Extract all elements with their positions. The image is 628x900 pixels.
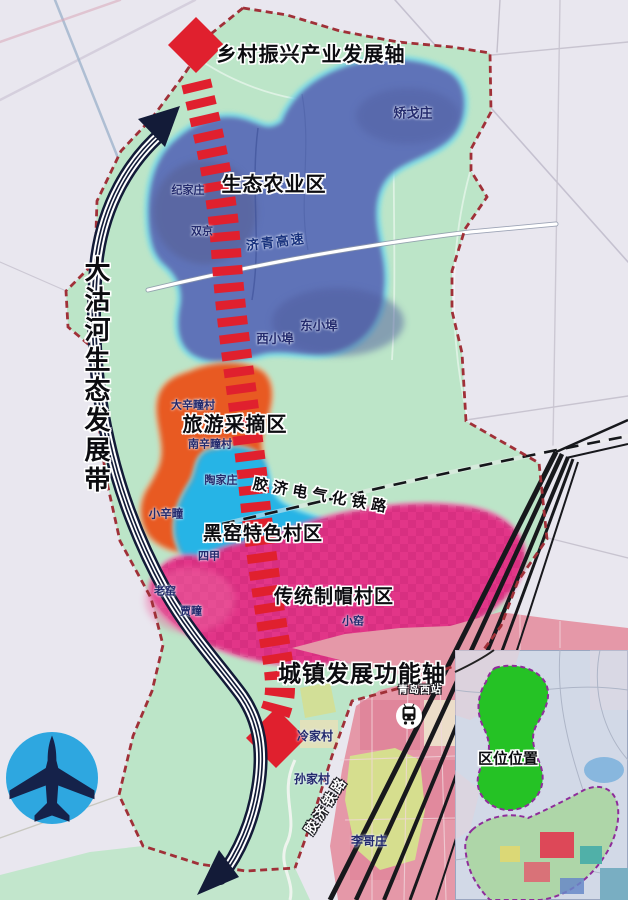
train-station-icon xyxy=(396,703,422,729)
village-label: 南辛疃村 xyxy=(188,439,232,450)
village-label: 孙家村 xyxy=(294,773,330,785)
village-label: 冷家村 xyxy=(297,730,333,742)
village-label: 陶家庄 xyxy=(205,475,238,486)
planning-map: 乡村振兴产业发展轴 生态农业区 旅游采摘区 黑窑特色村区 传统制帽村区 城镇发展… xyxy=(0,0,628,900)
village-label: 矫戈庄 xyxy=(393,108,432,121)
village-label: 西小埠 xyxy=(256,333,294,346)
airplane-icon xyxy=(6,732,98,824)
village-label: 东小埠 xyxy=(300,320,338,333)
label-urban-axis: 城镇发展功能轴 xyxy=(278,664,446,687)
village-label: 李哥庄 xyxy=(351,835,387,847)
village-label: 四甲 xyxy=(198,551,220,562)
label-zone-agriculture: 生态农业区 xyxy=(222,174,327,194)
village-label: 老窑 xyxy=(154,586,176,597)
label-station: 青岛西站 xyxy=(398,686,442,696)
village-label: 小辛疃 xyxy=(149,508,184,520)
village-label: 纪家庄 xyxy=(172,185,205,196)
village-label: 贾疃 xyxy=(180,606,202,617)
label-rural-axis: 乡村振兴产业发展轴 xyxy=(217,44,406,64)
label-zone-tourism: 旅游采摘区 xyxy=(183,414,288,434)
label-inset-title: 区位位置 xyxy=(478,752,538,767)
location-inset xyxy=(455,650,628,900)
label-river-belt: 大沽河生态发展带 xyxy=(82,256,108,496)
village-label: 大辛疃村 xyxy=(171,400,215,411)
village-label: 小窑 xyxy=(342,616,364,627)
label-zone-kiln: 黑窑特色村区 xyxy=(203,525,323,544)
village-label: 双京 xyxy=(191,226,213,237)
label-zone-hats: 传统制帽村区 xyxy=(274,588,394,607)
